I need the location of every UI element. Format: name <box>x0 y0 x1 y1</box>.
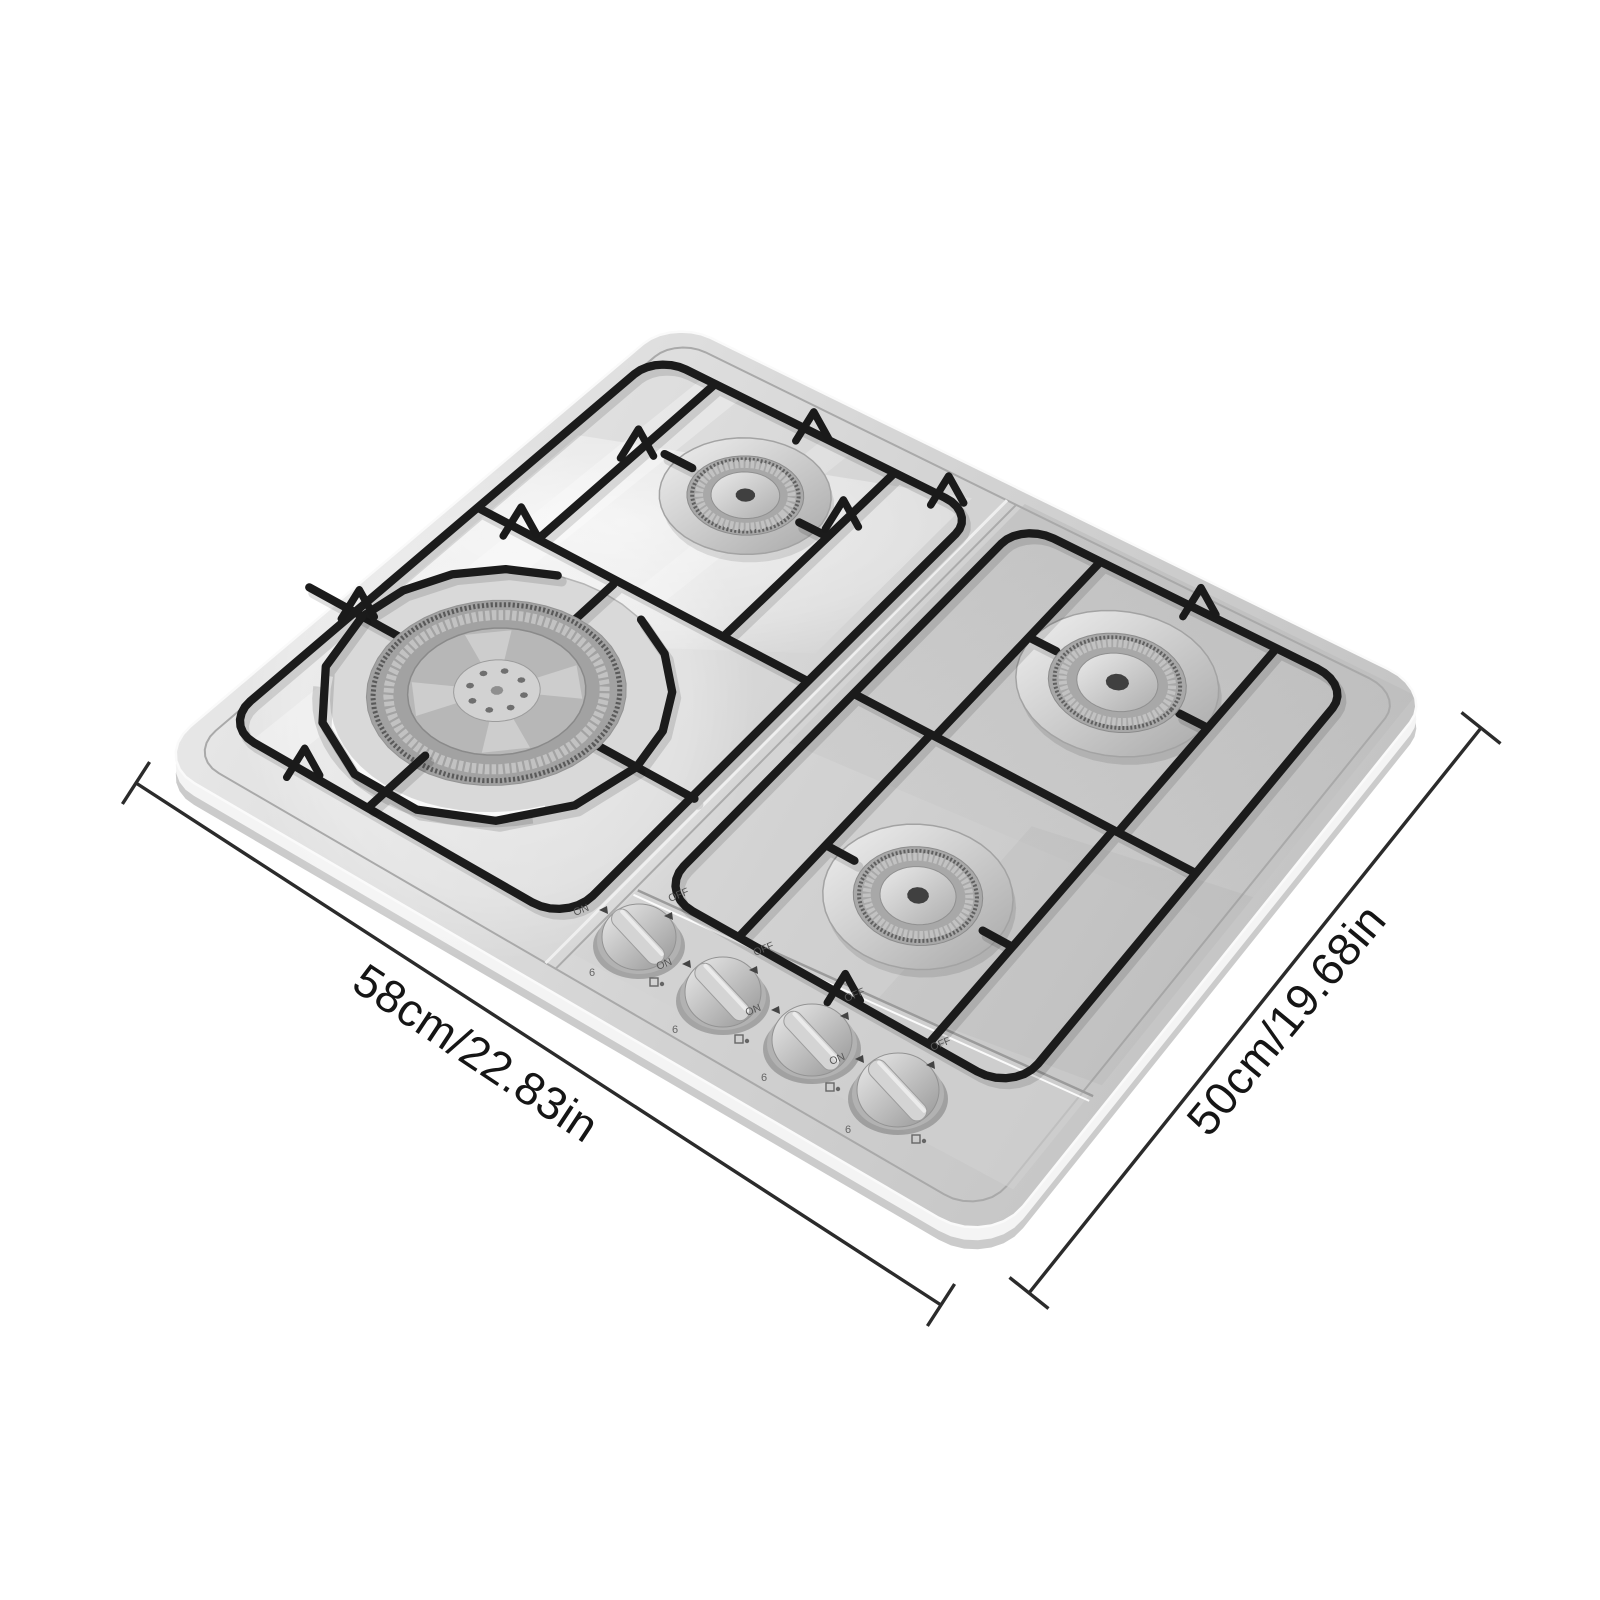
svg-text:6: 6 <box>589 967 595 979</box>
svg-text:6: 6 <box>761 1072 767 1084</box>
svg-text:6: 6 <box>672 1024 678 1036</box>
svg-text:6: 6 <box>845 1124 851 1136</box>
